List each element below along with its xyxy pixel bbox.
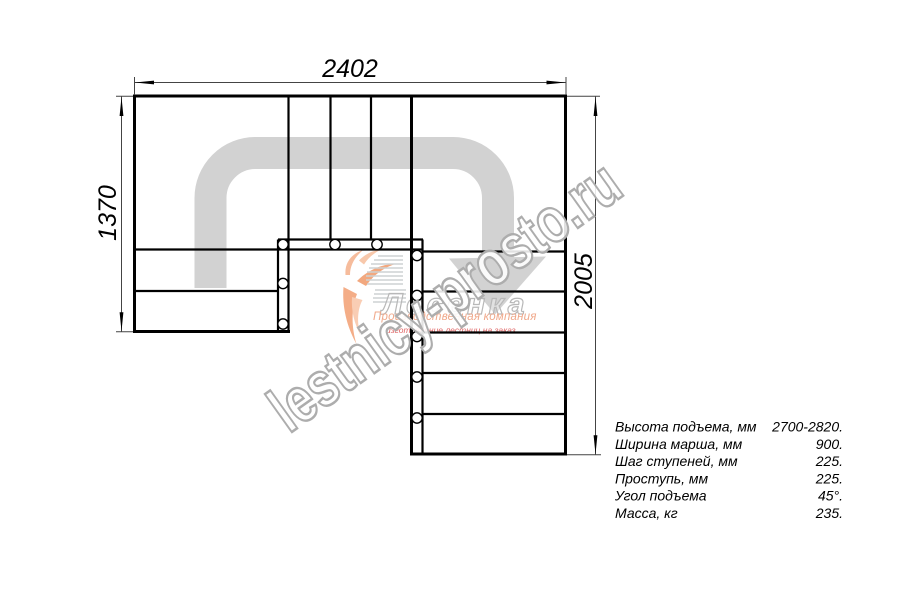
svg-text:2700-2820.: 2700-2820.: [771, 419, 843, 435]
svg-text:1370: 1370: [94, 185, 122, 241]
svg-text:225.: 225.: [815, 470, 843, 486]
svg-text:Ширина марша, мм: Ширина марша, мм: [615, 436, 743, 452]
svg-text:Угол подъема: Угол подъема: [614, 488, 707, 504]
svg-text:235.: 235.: [815, 505, 843, 521]
svg-text:2402: 2402: [321, 55, 378, 83]
svg-text:Шаг ступеней, мм: Шаг ступеней, мм: [615, 453, 738, 469]
svg-text:900.: 900.: [816, 436, 843, 452]
svg-text:Проступь, мм: Проступь, мм: [615, 470, 709, 486]
svg-text:Высота подъема, мм: Высота подъема, мм: [615, 419, 757, 435]
svg-text:Масса, кг: Масса, кг: [615, 505, 678, 521]
svg-text:45°.: 45°.: [818, 488, 843, 504]
svg-text:2005: 2005: [570, 253, 598, 310]
svg-text:225.: 225.: [815, 453, 843, 469]
